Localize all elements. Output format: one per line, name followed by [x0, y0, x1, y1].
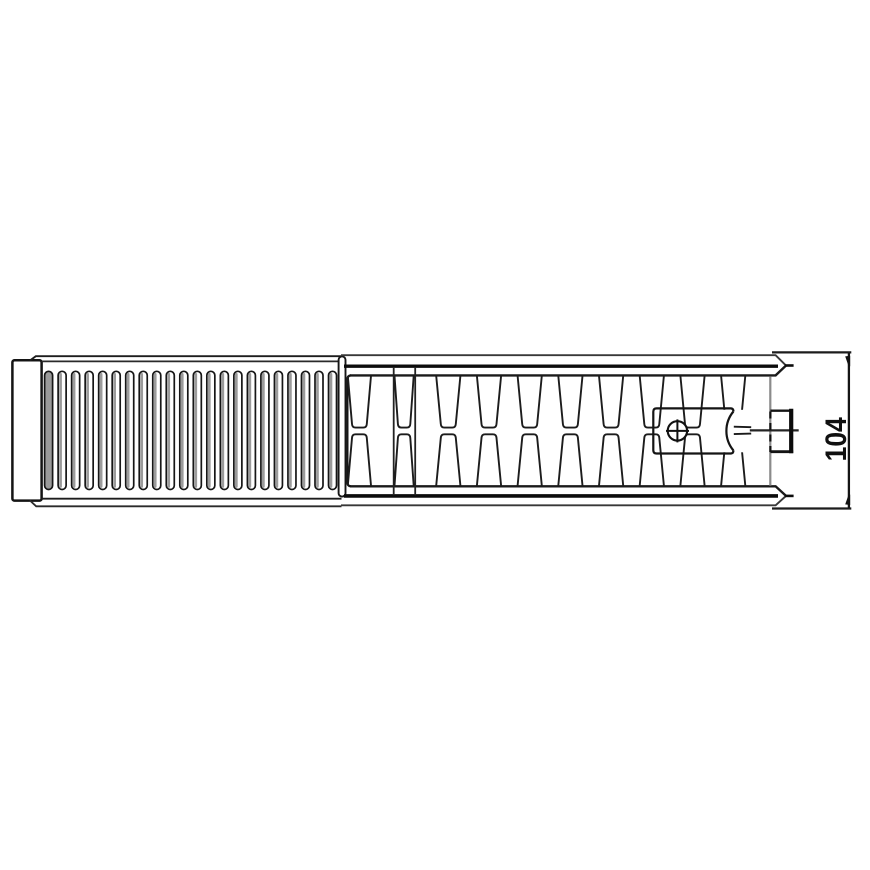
svg-text:104: 104 — [819, 417, 852, 462]
